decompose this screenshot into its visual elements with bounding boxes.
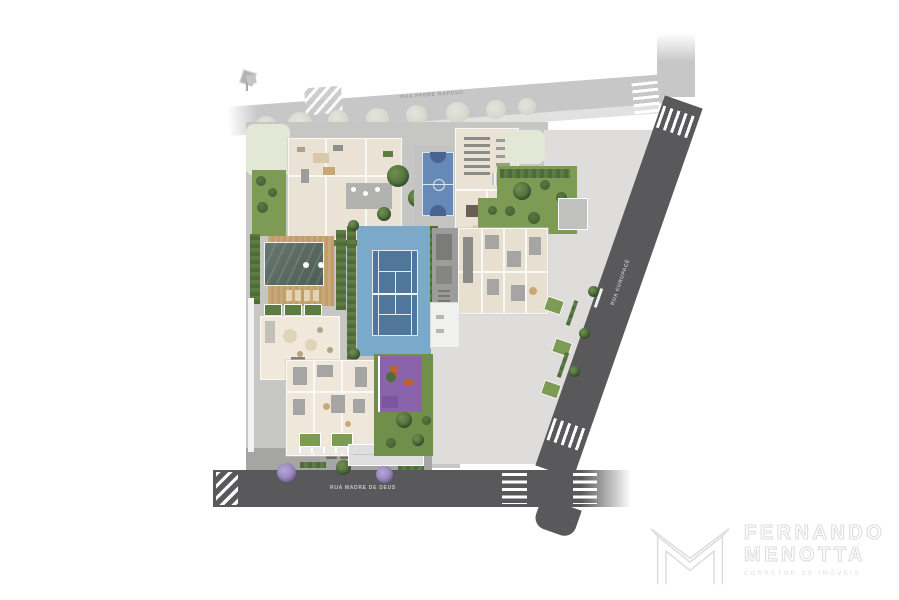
- bush-icon: [422, 416, 431, 425]
- deck-table-icon: [303, 262, 309, 268]
- basketball-court: [422, 152, 454, 216]
- tree-icon: [387, 165, 409, 187]
- tree-icon: [569, 366, 580, 377]
- top-street-crosswalk: [631, 81, 660, 116]
- tree-icon: [412, 434, 424, 446]
- faded-tree-icon: [446, 102, 469, 123]
- right-street-crosswalk-top: [656, 106, 698, 140]
- white-annex-building: [430, 302, 460, 348]
- pale-lawn-top: [505, 130, 545, 164]
- tree-icon: [348, 220, 359, 231]
- pool-hedge-east: [336, 230, 346, 310]
- bottom-street-crosswalk-left: [502, 473, 527, 504]
- tree-icon: [377, 207, 391, 221]
- bush-icon: [528, 212, 540, 224]
- sidewalk-hedge: [300, 462, 326, 468]
- tennis-hedge-west: [347, 226, 356, 360]
- faded-tree-icon: [518, 98, 536, 115]
- lounger-icon: [295, 290, 301, 301]
- brand-name-line2: MENOTTA: [744, 544, 885, 566]
- bush-icon: [257, 202, 268, 213]
- tennis-court: [372, 250, 418, 336]
- utility-pad: [558, 198, 588, 230]
- bush-icon: [540, 180, 550, 190]
- watermark: FERNANDO MENOTTA CORRETOR DE IMÓVEIS: [648, 514, 888, 592]
- basketball-key-top: [430, 152, 446, 163]
- tree-icon: [396, 412, 412, 428]
- flowering-tree-icon: [277, 463, 296, 482]
- boundary-wall-west: [248, 298, 254, 452]
- lone-tree-icon: [237, 69, 259, 93]
- garden-hedge-row: [500, 169, 570, 178]
- residential-tower-north: [458, 228, 548, 314]
- kids-playground: [378, 356, 422, 412]
- residential-tower-south: [286, 360, 382, 456]
- bush-icon: [488, 206, 497, 215]
- flowering-tree-icon: [376, 466, 393, 483]
- lap-pool: [264, 242, 324, 286]
- bush-icon: [386, 438, 396, 448]
- lounger-icon: [313, 290, 319, 301]
- lounger-icon: [304, 290, 310, 301]
- planter-box: [284, 304, 302, 316]
- west-hedge: [250, 234, 260, 304]
- street-label-bottom: RUA MADRE DE DEUS: [293, 485, 433, 491]
- tennis-court-apron: [357, 226, 431, 356]
- planter-box: [304, 304, 322, 316]
- bush-icon: [268, 188, 277, 197]
- brand-tagline: CORRETOR DE IMÓVEIS: [744, 571, 885, 577]
- bottom-street-hatch-left: [216, 472, 238, 505]
- brand-monogram-icon: [648, 514, 732, 588]
- basketball-key-bottom: [430, 205, 446, 216]
- gym-equipment: [464, 137, 490, 177]
- pale-lawn: [246, 124, 290, 176]
- deck-table-icon: [318, 262, 324, 268]
- tree-icon: [348, 348, 360, 360]
- brand-name-line1: FERNANDO: [744, 522, 885, 544]
- faded-tree-icon: [486, 100, 506, 119]
- top-street-north-branch: [657, 33, 695, 97]
- clubhouse: [288, 138, 402, 240]
- planter-box: [264, 304, 282, 316]
- tree-icon: [513, 182, 531, 200]
- brand-text: FERNANDO MENOTTA CORRETOR DE IMÓVEIS: [744, 514, 885, 577]
- bottom-street-crosswalk-right: [573, 473, 597, 504]
- site-plan-scene: RUA PADRE RAPOSO RUA CURUPACÊ RUA MADRE …: [0, 0, 899, 600]
- bush-icon: [256, 176, 266, 186]
- courtyard-planter: [299, 433, 321, 447]
- right-street-crosswalk-bottom: [546, 418, 588, 452]
- play-equipment-icon: [404, 380, 413, 386]
- bush-icon: [505, 206, 515, 216]
- lounger-icon: [286, 290, 292, 301]
- tree-icon: [579, 328, 590, 339]
